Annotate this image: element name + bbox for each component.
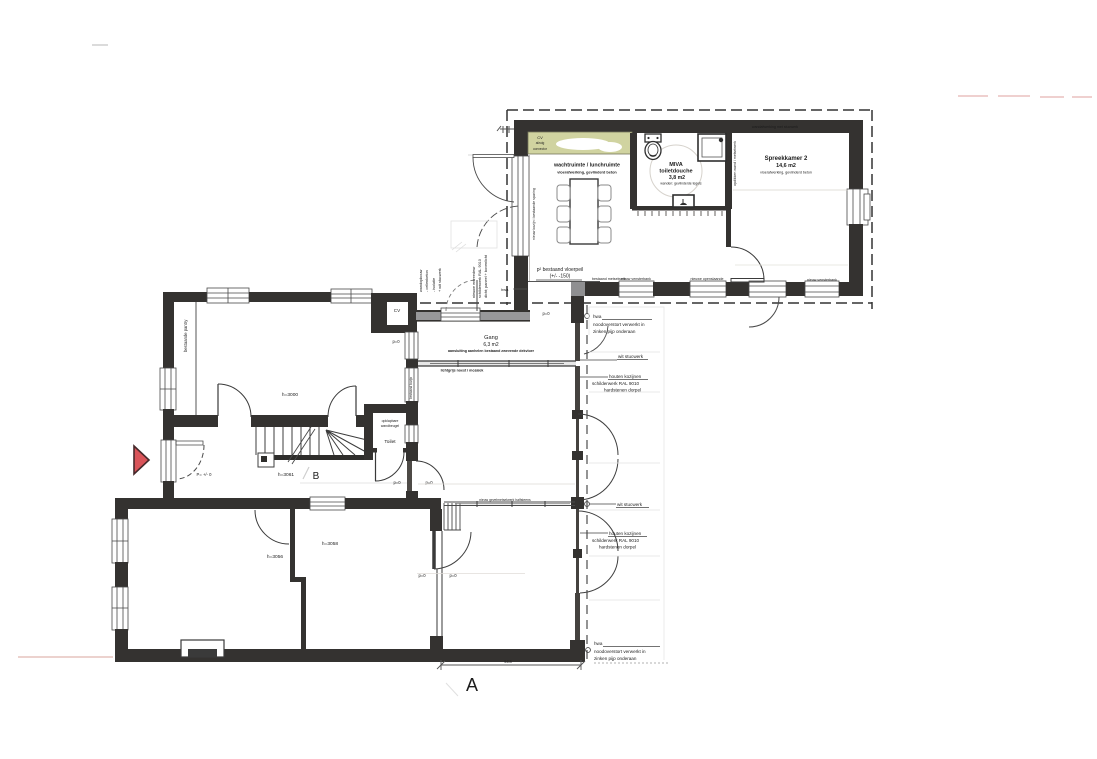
svg-text:vloerafwerking, gevlinderd bet: vloerafwerking, gevlinderd beton bbox=[557, 171, 617, 175]
svg-text:nieuwe entreedeur: nieuwe entreedeur bbox=[472, 266, 476, 298]
svg-text:h=3061: h=3061 bbox=[278, 472, 294, 478]
svg-text:6,3 m2: 6,3 m2 bbox=[483, 342, 499, 348]
svg-text:P= +/- 0: P= +/- 0 bbox=[197, 472, 213, 477]
svg-text:h=3000: h=3000 bbox=[282, 392, 298, 398]
svg-text:wit stucwerk: wit stucwerk bbox=[618, 354, 644, 359]
svg-text:hwa: hwa bbox=[594, 641, 603, 646]
svg-text:houten kozijnen: houten kozijnen bbox=[609, 374, 642, 379]
svg-text:p=0: p=0 bbox=[393, 480, 401, 485]
svg-text:vloerafwerking, gevlinderd bet: vloerafwerking, gevlinderd beton bbox=[760, 171, 812, 175]
svg-text:Spreekkamer 2: Spreekkamer 2 bbox=[765, 156, 808, 162]
svg-text:schilderwerk RAL 9010: schilderwerk RAL 9010 bbox=[592, 381, 640, 386]
svg-text:aansluiting aanhelen bestaand: aansluiting aanhelen bestaand zwevende d… bbox=[448, 349, 535, 353]
svg-text:MIVA: MIVA bbox=[669, 162, 683, 168]
svg-text:p=0: p=0 bbox=[542, 311, 550, 316]
svg-text:p=0: p=0 bbox=[392, 339, 400, 344]
svg-text:bestaand kozijn: bestaand kozijn bbox=[409, 377, 413, 399]
svg-text:Gang: Gang bbox=[484, 335, 498, 341]
svg-text:CV: CV bbox=[537, 135, 543, 140]
svg-text:schilderwerk RAL 9010: schilderwerk RAL 9010 bbox=[592, 538, 640, 543]
svg-text:zinken pijp onderaan: zinken pijp onderaan bbox=[593, 329, 636, 334]
svg-text:p=0: p=0 bbox=[418, 573, 426, 578]
svg-text:wandopbouw: wandopbouw bbox=[419, 269, 423, 292]
svg-text:A: A bbox=[466, 675, 478, 695]
svg-text:toiletdouche: toiletdouche bbox=[659, 169, 692, 175]
svg-text:wit stucwerk: wit stucwerk bbox=[617, 502, 643, 507]
svg-text:hardstenen dorpel: hardstenen dorpel bbox=[604, 388, 641, 393]
svg-text:opklapbare: opklapbare bbox=[382, 419, 399, 423]
svg-text:wandafwerking met stucwerk: wandafwerking met stucwerk bbox=[752, 125, 798, 129]
svg-text:p² bestaand vloerpeil: p² bestaand vloerpeil bbox=[537, 267, 583, 273]
svg-text:noodoverstort verwerkt in: noodoverstort verwerkt in bbox=[594, 649, 646, 654]
svg-text:convector: convector bbox=[533, 147, 548, 151]
svg-text:houten kozijnen: houten kozijnen bbox=[609, 531, 642, 536]
svg-text:dicht; paneel + bovenlicht: dicht; paneel + bovenlicht bbox=[484, 254, 488, 298]
svg-text:hardstenen dorpel: hardstenen dorpel bbox=[599, 545, 636, 550]
svg-text:- cellenbeton: - cellenbeton bbox=[425, 270, 429, 292]
svg-text:wanden: gevlinderde tegels: wanden: gevlinderde tegels bbox=[660, 182, 702, 186]
svg-text:nieuw gevelmetselwerk halfstee: nieuw gevelmetselwerk halfsteens bbox=[479, 498, 531, 502]
svg-text:CV: CV bbox=[394, 308, 401, 313]
svg-text:nieuwe openslaande: nieuwe openslaande bbox=[691, 277, 724, 281]
svg-text:3,8 m2: 3,8 m2 bbox=[669, 175, 685, 181]
svg-text:zinken pijp onderaan: zinken pijp onderaan bbox=[594, 656, 637, 661]
svg-text:schilderwerk RAL 9010: schilderwerk RAL 9010 bbox=[478, 259, 482, 298]
svg-text:h=3056: h=3056 bbox=[267, 554, 283, 560]
svg-text:5415: 5415 bbox=[504, 660, 512, 664]
svg-text:hwa: hwa bbox=[593, 314, 602, 319]
svg-text:wachtruimte / lunchruimte: wachtruimte / lunchruimte bbox=[553, 163, 620, 169]
svg-text:B: B bbox=[313, 471, 320, 482]
svg-text:+ wit stucwerk: + wit stucwerk bbox=[438, 268, 442, 292]
svg-text:afzuig: afzuig bbox=[536, 141, 545, 145]
svg-text:noodoverstort verwerkt in: noodoverstort verwerkt in bbox=[593, 322, 645, 327]
svg-text:h=3058: h=3058 bbox=[322, 541, 338, 547]
svg-text:nieuw vensterbank: nieuw vensterbank bbox=[807, 278, 837, 282]
svg-text:hwa: hwa bbox=[501, 287, 509, 292]
svg-text:wandbeugel: wandbeugel bbox=[381, 424, 400, 428]
svg-text:opdikken wand i metselwerk: opdikken wand i metselwerk bbox=[733, 141, 737, 186]
svg-text:(+/- -150): (+/- -150) bbox=[550, 274, 571, 280]
svg-text:bestaande pantry: bestaande pantry bbox=[183, 319, 188, 352]
svg-text:nieuw kozijn i bestaande spari: nieuw kozijn i bestaande sparing bbox=[532, 188, 536, 240]
svg-text:14,6 m2: 14,6 m2 bbox=[776, 163, 796, 169]
svg-text:- isolatie: - isolatie bbox=[432, 278, 436, 292]
svg-text:p=0: p=0 bbox=[449, 573, 457, 578]
svg-text:nieuw vensterbank: nieuw vensterbank bbox=[621, 277, 651, 281]
svg-text:Toilet: Toilet bbox=[384, 439, 396, 445]
svg-text:lichtgrijs noest i mozaiek: lichtgrijs noest i mozaiek bbox=[441, 369, 484, 373]
